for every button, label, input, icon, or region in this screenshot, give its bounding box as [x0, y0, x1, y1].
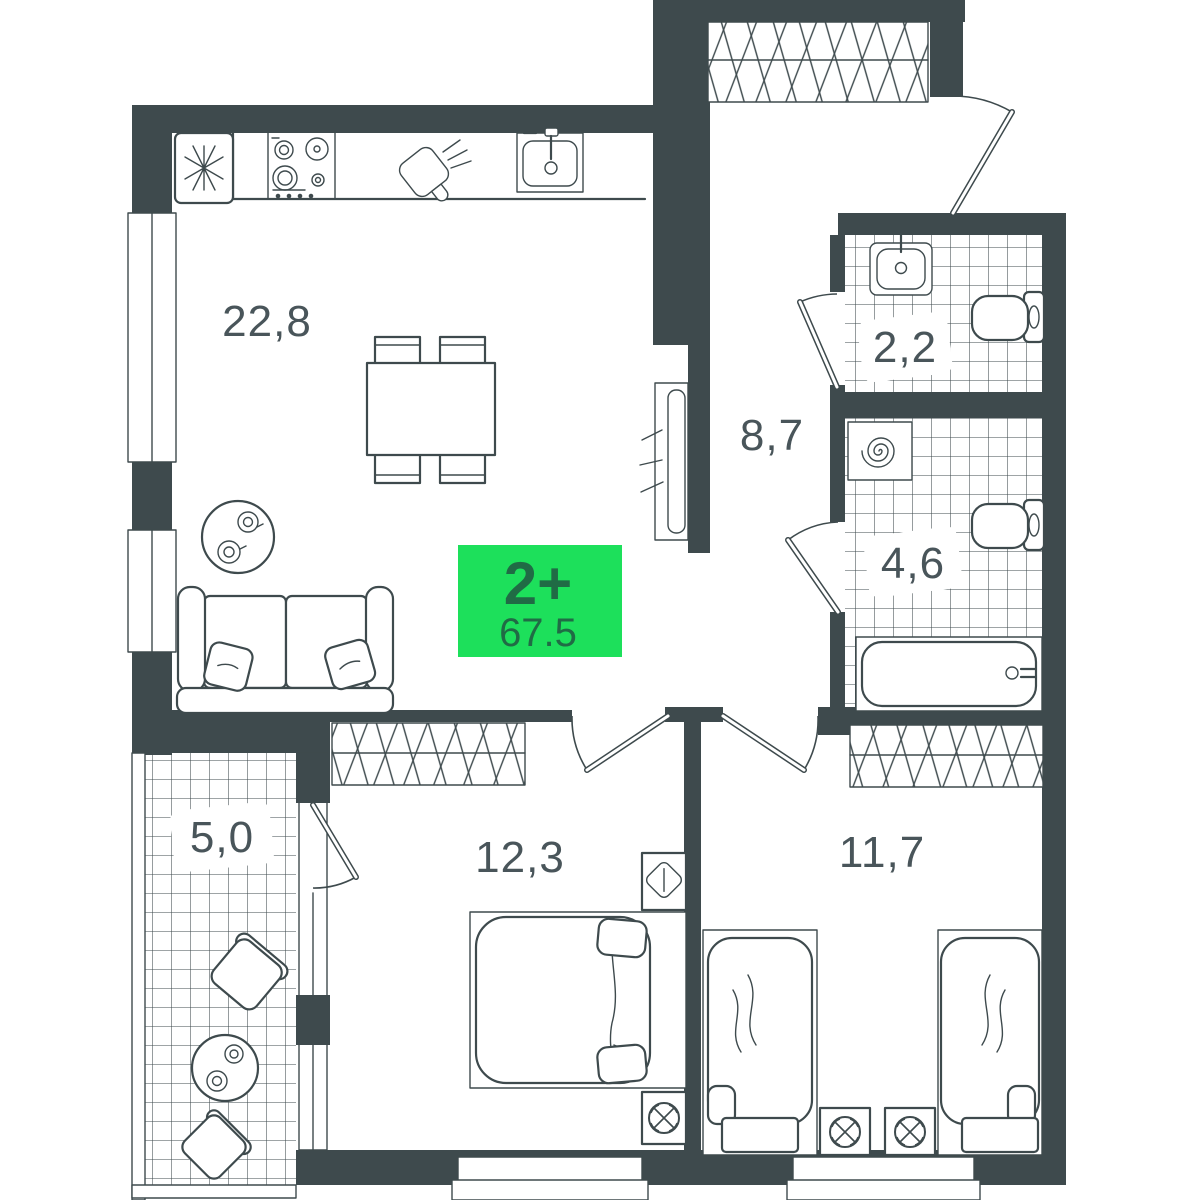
hallway-wardrobe: [708, 22, 928, 102]
room-label-hallway: 8,7: [740, 411, 804, 460]
bedroom-second-door: [723, 716, 818, 770]
bathtub-icon: [856, 637, 1042, 711]
room-label-bedroom-second: 11,7: [839, 828, 925, 877]
coffee-table: [202, 501, 274, 573]
bedroom-main-door: [572, 716, 668, 770]
nightstand: [642, 1092, 686, 1144]
room-label-wc: 2,2: [873, 323, 937, 372]
sofa-pillow: [202, 641, 254, 693]
stove-icon: [268, 133, 335, 199]
floor-plan: 22,8 8,7 2,2 4,6 5,0 12,3 11,7 2+ 67.5: [0, 0, 1200, 1200]
bedroom-second-wardrobe: [850, 725, 1043, 787]
nightstand: [820, 1108, 870, 1155]
balcony-table: [192, 1035, 258, 1101]
nightstand: [885, 1108, 935, 1155]
area-badge-area: 67.5: [499, 611, 577, 655]
bedroom-second-window-bay: [787, 1157, 980, 1200]
balcony-partition-window: [296, 753, 330, 1150]
bathroom-door: [788, 522, 838, 612]
bedroom-main-window-bay: [452, 1157, 648, 1200]
tv-unit: [640, 383, 688, 540]
single-bed: [938, 930, 1042, 1155]
fan-icon: [895, 1117, 925, 1147]
living-room-window-upper: [128, 213, 176, 462]
kitchen-counter: [175, 128, 645, 212]
cutting-board-icon: [396, 140, 471, 212]
nightstand: [642, 853, 686, 910]
kitchen-sink-icon: [517, 128, 583, 192]
room-label-bedroom-main: 12,3: [475, 833, 565, 882]
fan-icon: [830, 1117, 860, 1147]
living-room-window-lower: [128, 530, 176, 652]
area-badge: 2+ 67.5: [458, 545, 622, 657]
room-label-balcony: 5,0: [190, 813, 254, 862]
fan-icon: [649, 1103, 679, 1133]
wc-sink-icon: [870, 235, 932, 295]
sofa: [177, 587, 393, 713]
washing-machine-icon: [848, 422, 912, 480]
double-bed: [470, 912, 686, 1088]
entrance-door: [951, 96, 1012, 213]
wc-door: [800, 294, 837, 387]
single-bed: [703, 930, 817, 1155]
bathroom-toilet-icon: [972, 500, 1044, 550]
room-label-kitchen-living: 22,8: [222, 297, 312, 346]
area-badge-rooms: 2+: [504, 550, 572, 617]
bedroom-main-wardrobe: [332, 723, 525, 785]
floor-plan-page: 22,8 8,7 2,2 4,6 5,0 12,3 11,7 2+ 67.5: [0, 0, 1200, 1200]
room-label-bathroom: 4,6: [881, 539, 945, 588]
wc-toilet-icon: [972, 292, 1044, 342]
dining-table: [367, 337, 495, 483]
